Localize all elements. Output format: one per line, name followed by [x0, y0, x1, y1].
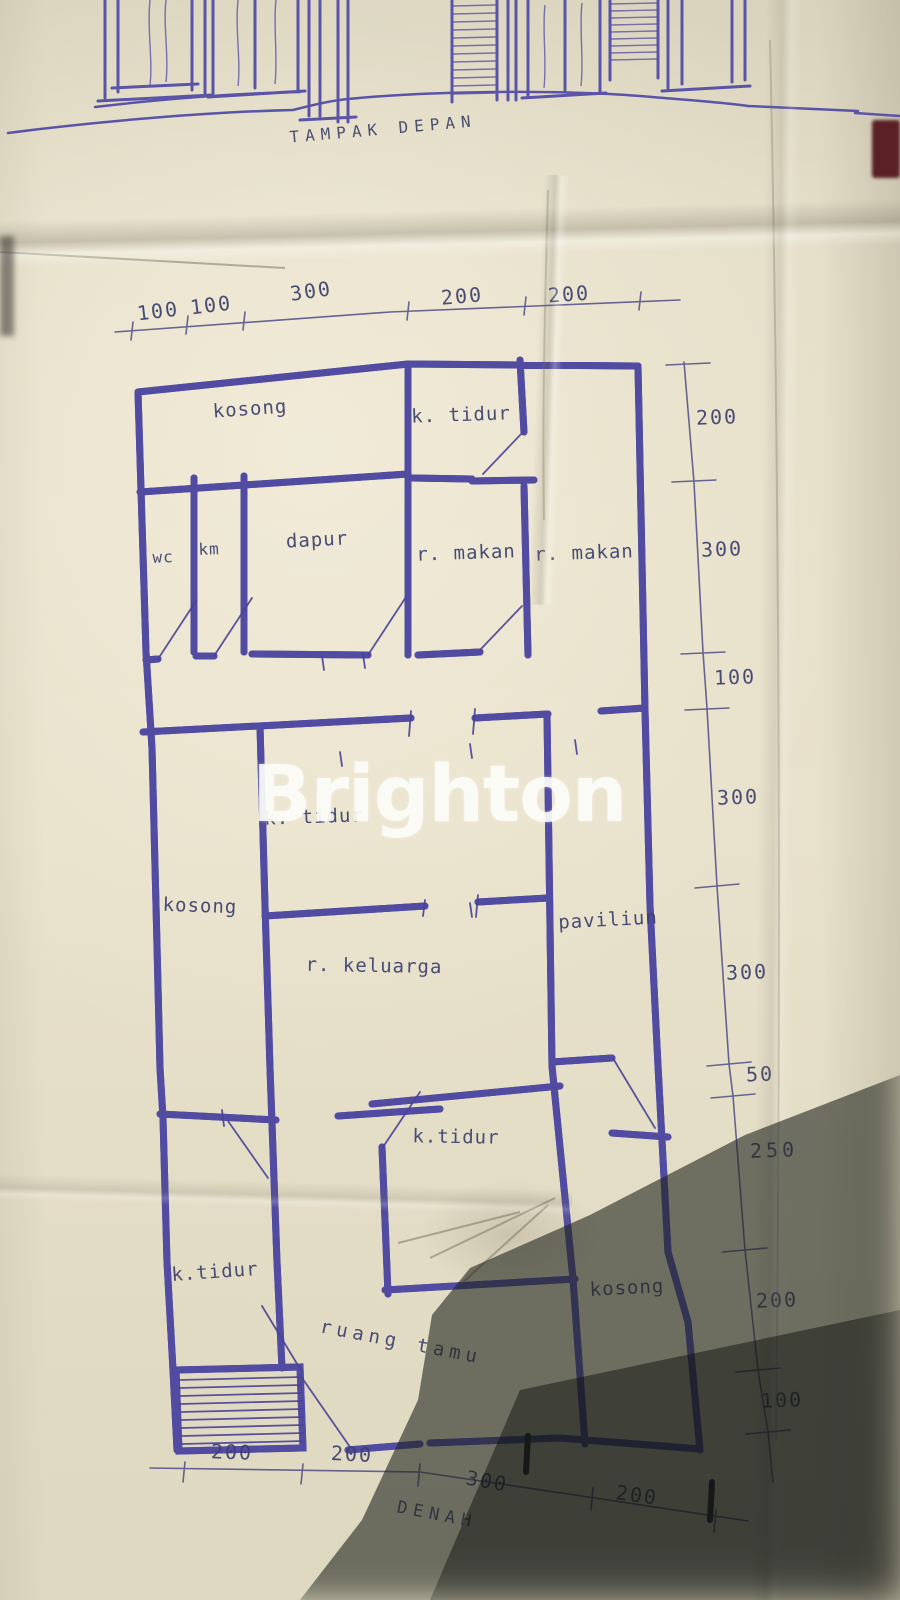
dim-right-9: 100: [761, 1387, 804, 1412]
elevation-windows: [98, 0, 750, 122]
room-label-rkeluarga: r. keluarga: [305, 954, 442, 978]
dim-right-7: 250: [750, 1137, 799, 1163]
dim-right-1: 200: [696, 404, 739, 429]
brighton-watermark: Brighton: [252, 750, 626, 840]
dim-right-6: 50: [746, 1062, 775, 1087]
dim-right-8: 200: [756, 1287, 799, 1312]
dim-right-2: 300: [701, 536, 744, 561]
paper-crease-lines: [0, 40, 779, 1440]
dim-right-3: 100: [714, 664, 757, 689]
room-label-ktidur-lower: k.tidur: [412, 1125, 499, 1149]
blueprint-photo: TAMPAK DEPAN DENAH 100 100 300 200 200 2…: [0, 0, 900, 1600]
room-label-dapur: dapur: [285, 527, 348, 552]
elevation-louvres: [149, 0, 657, 94]
room-label-wc: wc: [152, 547, 174, 567]
room-label-kosong-bottom: kosong: [589, 1275, 665, 1301]
dim-top-5: 200: [547, 281, 591, 308]
dim-right-4: 300: [717, 784, 760, 809]
room-label-rmakan-a: r. makan: [416, 540, 516, 565]
dim-top-2: 100: [189, 291, 234, 320]
dim-right-5: 300: [726, 959, 769, 984]
room-label-ktidur-top: k. tidur: [411, 402, 511, 427]
dim-top-1: 100: [136, 297, 181, 326]
room-label-kosong-left: kosong: [162, 894, 237, 919]
dim-bottom-1: 200: [211, 1439, 254, 1464]
room-label-rmakan-b: r. makan: [534, 540, 634, 565]
room-label-km: km: [198, 539, 220, 559]
dim-bottom-2: 200: [330, 1441, 373, 1467]
dim-top-4: 200: [440, 282, 484, 310]
